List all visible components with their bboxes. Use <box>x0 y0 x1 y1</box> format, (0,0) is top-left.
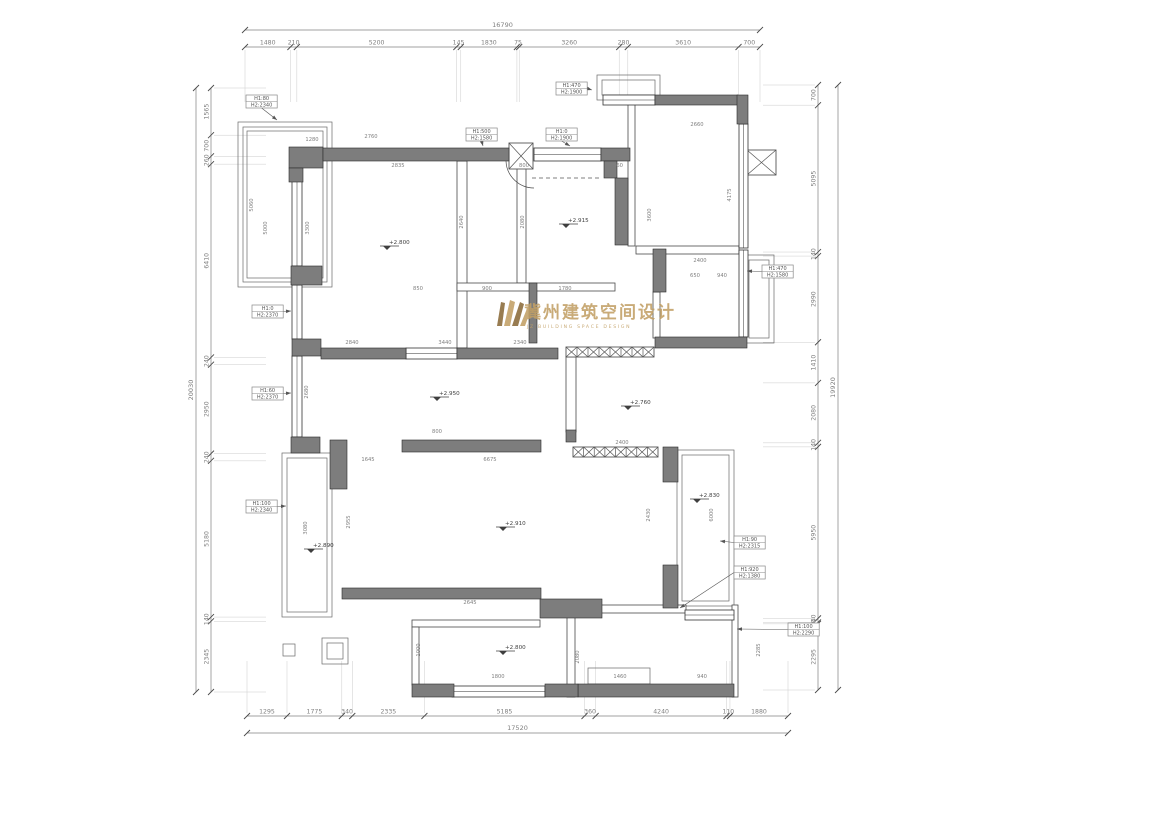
tag-line1: H1:920 <box>741 567 759 573</box>
interior-dim: 2080 <box>575 650 581 663</box>
tag-line1: H1:470 <box>563 83 581 89</box>
tag-leader <box>737 629 788 630</box>
tag-line1: H1:100 <box>795 624 813 630</box>
dim-total-label: 17520 <box>507 724 528 732</box>
dim-seg-label: 75 <box>514 40 522 47</box>
dim-seg-label: 1410 <box>811 355 818 371</box>
tag-line2: H2:2315 <box>739 543 760 549</box>
interior-dim: 2640 <box>459 215 465 228</box>
tag-line1: H1:0 <box>262 306 274 312</box>
tag-line1: H1:90 <box>742 537 757 543</box>
interior-dim: 2340 <box>513 340 526 346</box>
dim-seg-label: 1880 <box>751 709 767 716</box>
level-marker-icon <box>307 549 315 553</box>
level-marker-icon <box>562 224 570 228</box>
interior-dim: 1280 <box>305 137 318 143</box>
level-value: +2.915 <box>568 218 589 224</box>
interior-dim: 6000 <box>709 508 715 521</box>
interior-dim: 2645 <box>463 600 476 606</box>
interior-dim: 1000 <box>416 643 422 656</box>
dim-seg-label: 145 <box>453 40 465 47</box>
floor-plan-canvas: 1679014802105200145183075326028036107001… <box>0 0 1150 813</box>
dim-seg-label: 1775 <box>307 709 323 716</box>
interior-dim: 900 <box>482 286 492 292</box>
interior-dim: 3440 <box>438 340 451 346</box>
tag-line2: H2:2370 <box>257 312 278 318</box>
dim-seg-label: 340 <box>341 709 353 716</box>
tag-leader-arrow <box>281 504 286 508</box>
dim-seg-label: 240 <box>204 451 211 463</box>
logo-cn-text: 冀州建筑空间设计 <box>524 302 676 323</box>
interior-dim: 800 <box>519 163 529 169</box>
dim-seg-label: 260 <box>204 154 211 166</box>
wall <box>663 447 678 482</box>
wall <box>655 337 747 348</box>
tag-line2: H2:1580 <box>767 272 788 278</box>
tag-line2: H2:2290 <box>793 630 814 636</box>
level-value: +2.760 <box>630 400 651 406</box>
level-marker-icon <box>499 527 507 531</box>
logo-fan-stripe <box>497 302 505 326</box>
dim-seg-label: 5095 <box>811 171 818 187</box>
balcony-outline <box>283 644 295 656</box>
dim-seg-label: 140 <box>811 248 818 260</box>
balcony-outline <box>322 638 348 664</box>
interior-dim: 2285 <box>756 643 762 656</box>
dim-seg-label: 2990 <box>811 291 818 307</box>
wall <box>601 148 630 161</box>
dim-total-label: 16790 <box>492 21 513 29</box>
tag-line2: H2:1380 <box>739 573 760 579</box>
partition-wall <box>412 620 540 627</box>
wall <box>330 440 347 489</box>
interior-dim: 1645 <box>361 457 374 463</box>
wall <box>289 168 303 182</box>
dim-seg-label: 700 <box>204 140 211 152</box>
tag-leader-arrow <box>720 539 725 543</box>
interior-dim: 2835 <box>391 163 404 169</box>
level-value: +2.800 <box>505 645 526 651</box>
floor-plan-page: 1679014802105200145183075326028036107001… <box>0 0 1150 813</box>
dim-seg-label: 3610 <box>675 40 691 47</box>
wall <box>540 599 602 618</box>
tag-line2: H2:2340 <box>251 507 272 513</box>
interior-dim: 1800 <box>491 674 504 680</box>
tag-leader-arrow <box>587 87 593 92</box>
wall <box>566 430 576 442</box>
dim-total-label: 20030 <box>187 380 195 401</box>
interior-dim: 1780 <box>558 286 571 292</box>
partition-wall <box>636 246 739 254</box>
dim-seg-label: 5185 <box>497 709 513 716</box>
dim-seg-label: 210 <box>288 40 300 47</box>
level-value: +2.830 <box>699 493 720 499</box>
interior-dim: 2400 <box>615 440 628 446</box>
interior-dim: 3300 <box>305 221 311 234</box>
level-marker-icon <box>693 499 701 503</box>
wall <box>653 249 666 292</box>
dim-seg-label: 2080 <box>811 405 818 421</box>
wall <box>291 266 322 285</box>
level-marker-icon <box>383 246 391 250</box>
dim-seg-label: 360 <box>584 709 596 716</box>
dim-seg-label: 5180 <box>204 531 211 547</box>
tag-line1: H1:500 <box>473 129 491 135</box>
wall <box>292 339 321 356</box>
balcony-outline <box>682 455 729 601</box>
tag-line2: H2:2340 <box>251 102 272 108</box>
tag-line1: H1:100 <box>253 501 271 507</box>
tag-line2: H2:1900 <box>561 89 582 95</box>
dim-seg-label: 2345 <box>204 649 211 665</box>
wall <box>457 348 558 359</box>
wall <box>402 440 541 452</box>
tag-leader-arrow <box>272 116 278 122</box>
dim-seg-label: 140 <box>811 439 818 451</box>
wall <box>323 148 509 161</box>
interior-dim: 650 <box>690 273 700 279</box>
dim-seg-label: 280 <box>618 40 630 47</box>
dim-seg-label: 5200 <box>369 40 385 47</box>
level-value: +2.950 <box>439 391 460 397</box>
wall <box>663 565 678 608</box>
dim-seg-label: 5950 <box>811 525 818 541</box>
level-marker-icon <box>499 651 507 655</box>
logo-en-text: JZ BUILDING SPACE DESIGN <box>526 324 631 330</box>
wall <box>615 178 628 245</box>
tag-line1: H1:470 <box>769 266 787 272</box>
interior-dim: 3080 <box>303 521 309 534</box>
interior-dim: 850 <box>413 286 423 292</box>
wall <box>655 95 738 105</box>
logo-watermark: 冀州建筑空间设计 JZ BUILDING SPACE DESIGN <box>497 300 676 330</box>
tag-line1: H1:80 <box>254 96 269 102</box>
tag-leader-arrow <box>286 391 291 395</box>
interior-dim: 6675 <box>483 457 496 463</box>
balcony-outline <box>677 450 734 606</box>
dim-seg-label: 140 <box>204 613 211 625</box>
level-marker-icon <box>433 397 441 401</box>
dim-seg-label: 6410 <box>204 253 211 269</box>
dim-seg-label: 2295 <box>811 649 818 665</box>
dim-total-label: 19920 <box>829 377 837 398</box>
partition-wall <box>457 161 467 348</box>
partition-wall <box>628 103 635 246</box>
interior-dim: 940 <box>697 674 707 680</box>
tag-line2: H2:2370 <box>257 394 278 400</box>
interior-dim: 2660 <box>690 122 703 128</box>
tag-leader-arrow <box>480 141 485 147</box>
interior-dim: 800 <box>432 429 442 435</box>
interior-dim: 2430 <box>646 508 652 521</box>
tag-leader <box>680 573 734 609</box>
interior-dim: 3600 <box>647 208 653 221</box>
dim-seg-label: 1480 <box>260 40 276 47</box>
interior-dim: 560 <box>613 163 623 169</box>
wall <box>578 684 734 697</box>
dim-seg-label: 240 <box>204 355 211 367</box>
tag-line1: H1:0 <box>556 129 568 135</box>
interior-dim: 1460 <box>613 674 626 680</box>
tag-leader-arrow <box>565 142 571 148</box>
wall <box>545 684 578 697</box>
dim-seg-label: 110 <box>722 709 734 716</box>
partition-wall <box>567 605 575 697</box>
dim-seg-label: 2335 <box>380 709 396 716</box>
tag-line2: H2:1900 <box>551 135 572 141</box>
interior-dim: 2840 <box>345 340 358 346</box>
level-value: +2.910 <box>505 521 526 527</box>
wall <box>737 95 748 124</box>
wall <box>291 437 320 453</box>
interior-dim: 2680 <box>304 385 310 398</box>
wall <box>289 147 323 168</box>
wall <box>412 684 454 697</box>
tag-line1: H1:60 <box>260 388 275 394</box>
wall <box>321 348 406 359</box>
level-value: +2.800 <box>389 240 410 246</box>
level-marker-icon <box>624 406 632 410</box>
tag-leader-arrow <box>286 309 291 313</box>
dim-seg-label: 3260 <box>561 40 577 47</box>
level-value: +2.890 <box>313 543 334 549</box>
interior-dim: 5000 <box>263 221 269 234</box>
dim-seg-label: 4240 <box>653 709 669 716</box>
balcony-outline <box>602 80 655 95</box>
partition-wall <box>566 357 576 432</box>
dim-seg-label: 1295 <box>259 709 275 716</box>
interior-dim: 2955 <box>346 515 352 528</box>
dim-seg-label: 700 <box>743 40 755 47</box>
cad-linework: 1679014802105200145183075326028036107001… <box>187 21 841 736</box>
interior-dim: 2080 <box>520 215 526 228</box>
dim-seg-label: 2950 <box>204 401 211 417</box>
wall <box>342 588 541 599</box>
tag-line2: H2:1580 <box>471 135 492 141</box>
interior-dim: 4175 <box>727 188 733 201</box>
interior-dim: 940 <box>717 273 727 279</box>
dim-seg-label: 700 <box>811 89 818 101</box>
balcony-outline <box>327 643 343 659</box>
dim-seg-label: 1565 <box>204 104 211 120</box>
dim-seg-label: 1830 <box>481 40 497 47</box>
interior-dim: 2760 <box>364 134 377 140</box>
interior-dim: 5060 <box>249 198 255 211</box>
interior-dim: 2400 <box>693 258 706 264</box>
